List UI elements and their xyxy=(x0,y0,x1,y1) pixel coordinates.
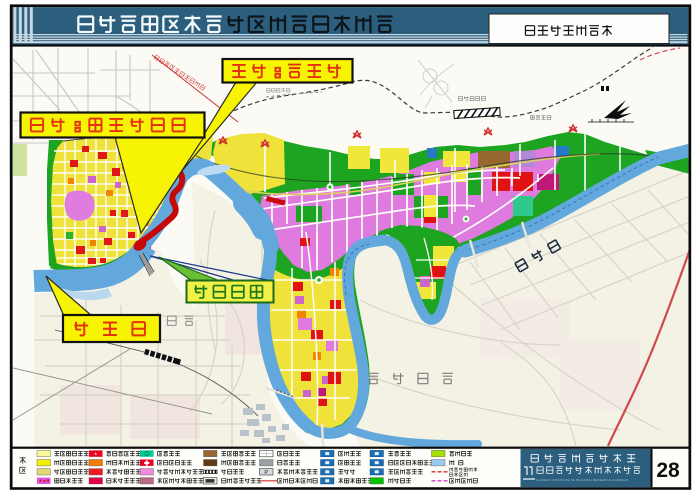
svg-text:*: * xyxy=(94,452,97,459)
svg-text:28: 28 xyxy=(656,459,680,482)
svg-text:P: P xyxy=(264,470,268,476)
svg-text:GUANGXI INSTITUTE OF BUILDING: GUANGXI INSTITUTE OF BUILDING RESEARCH &… xyxy=(536,478,628,482)
